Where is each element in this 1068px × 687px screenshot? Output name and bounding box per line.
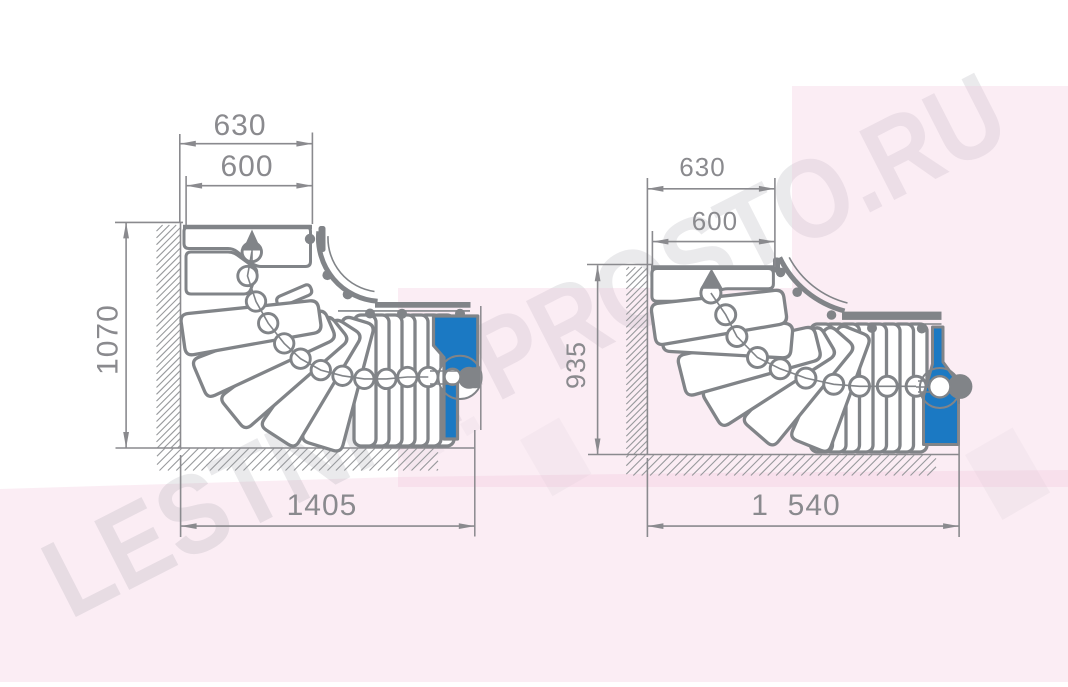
svg-text:1070: 1070 xyxy=(91,304,124,375)
svg-text:600: 600 xyxy=(692,206,738,236)
svg-text:1405: 1405 xyxy=(287,489,358,522)
svg-text:600: 600 xyxy=(220,150,273,183)
svg-text:1 540: 1 540 xyxy=(751,489,840,522)
svg-text:630: 630 xyxy=(679,152,725,182)
svg-text:935: 935 xyxy=(561,341,591,389)
svg-text:630: 630 xyxy=(213,109,266,142)
